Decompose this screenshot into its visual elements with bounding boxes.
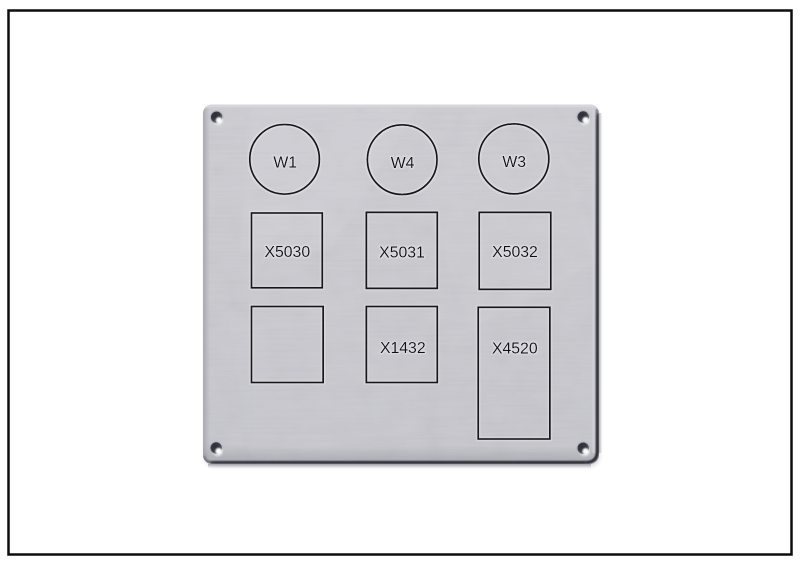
svg-text:W1: W1 (273, 155, 297, 172)
svg-text:X5031: X5031 (379, 245, 425, 262)
svg-text:X5030: X5030 (264, 244, 310, 261)
svg-text:X1432: X1432 (380, 340, 426, 357)
svg-text:W4: W4 (391, 155, 415, 172)
svg-text:X4520: X4520 (492, 341, 538, 358)
svg-text:W3: W3 (502, 154, 526, 171)
svg-text:X5032: X5032 (492, 244, 538, 261)
